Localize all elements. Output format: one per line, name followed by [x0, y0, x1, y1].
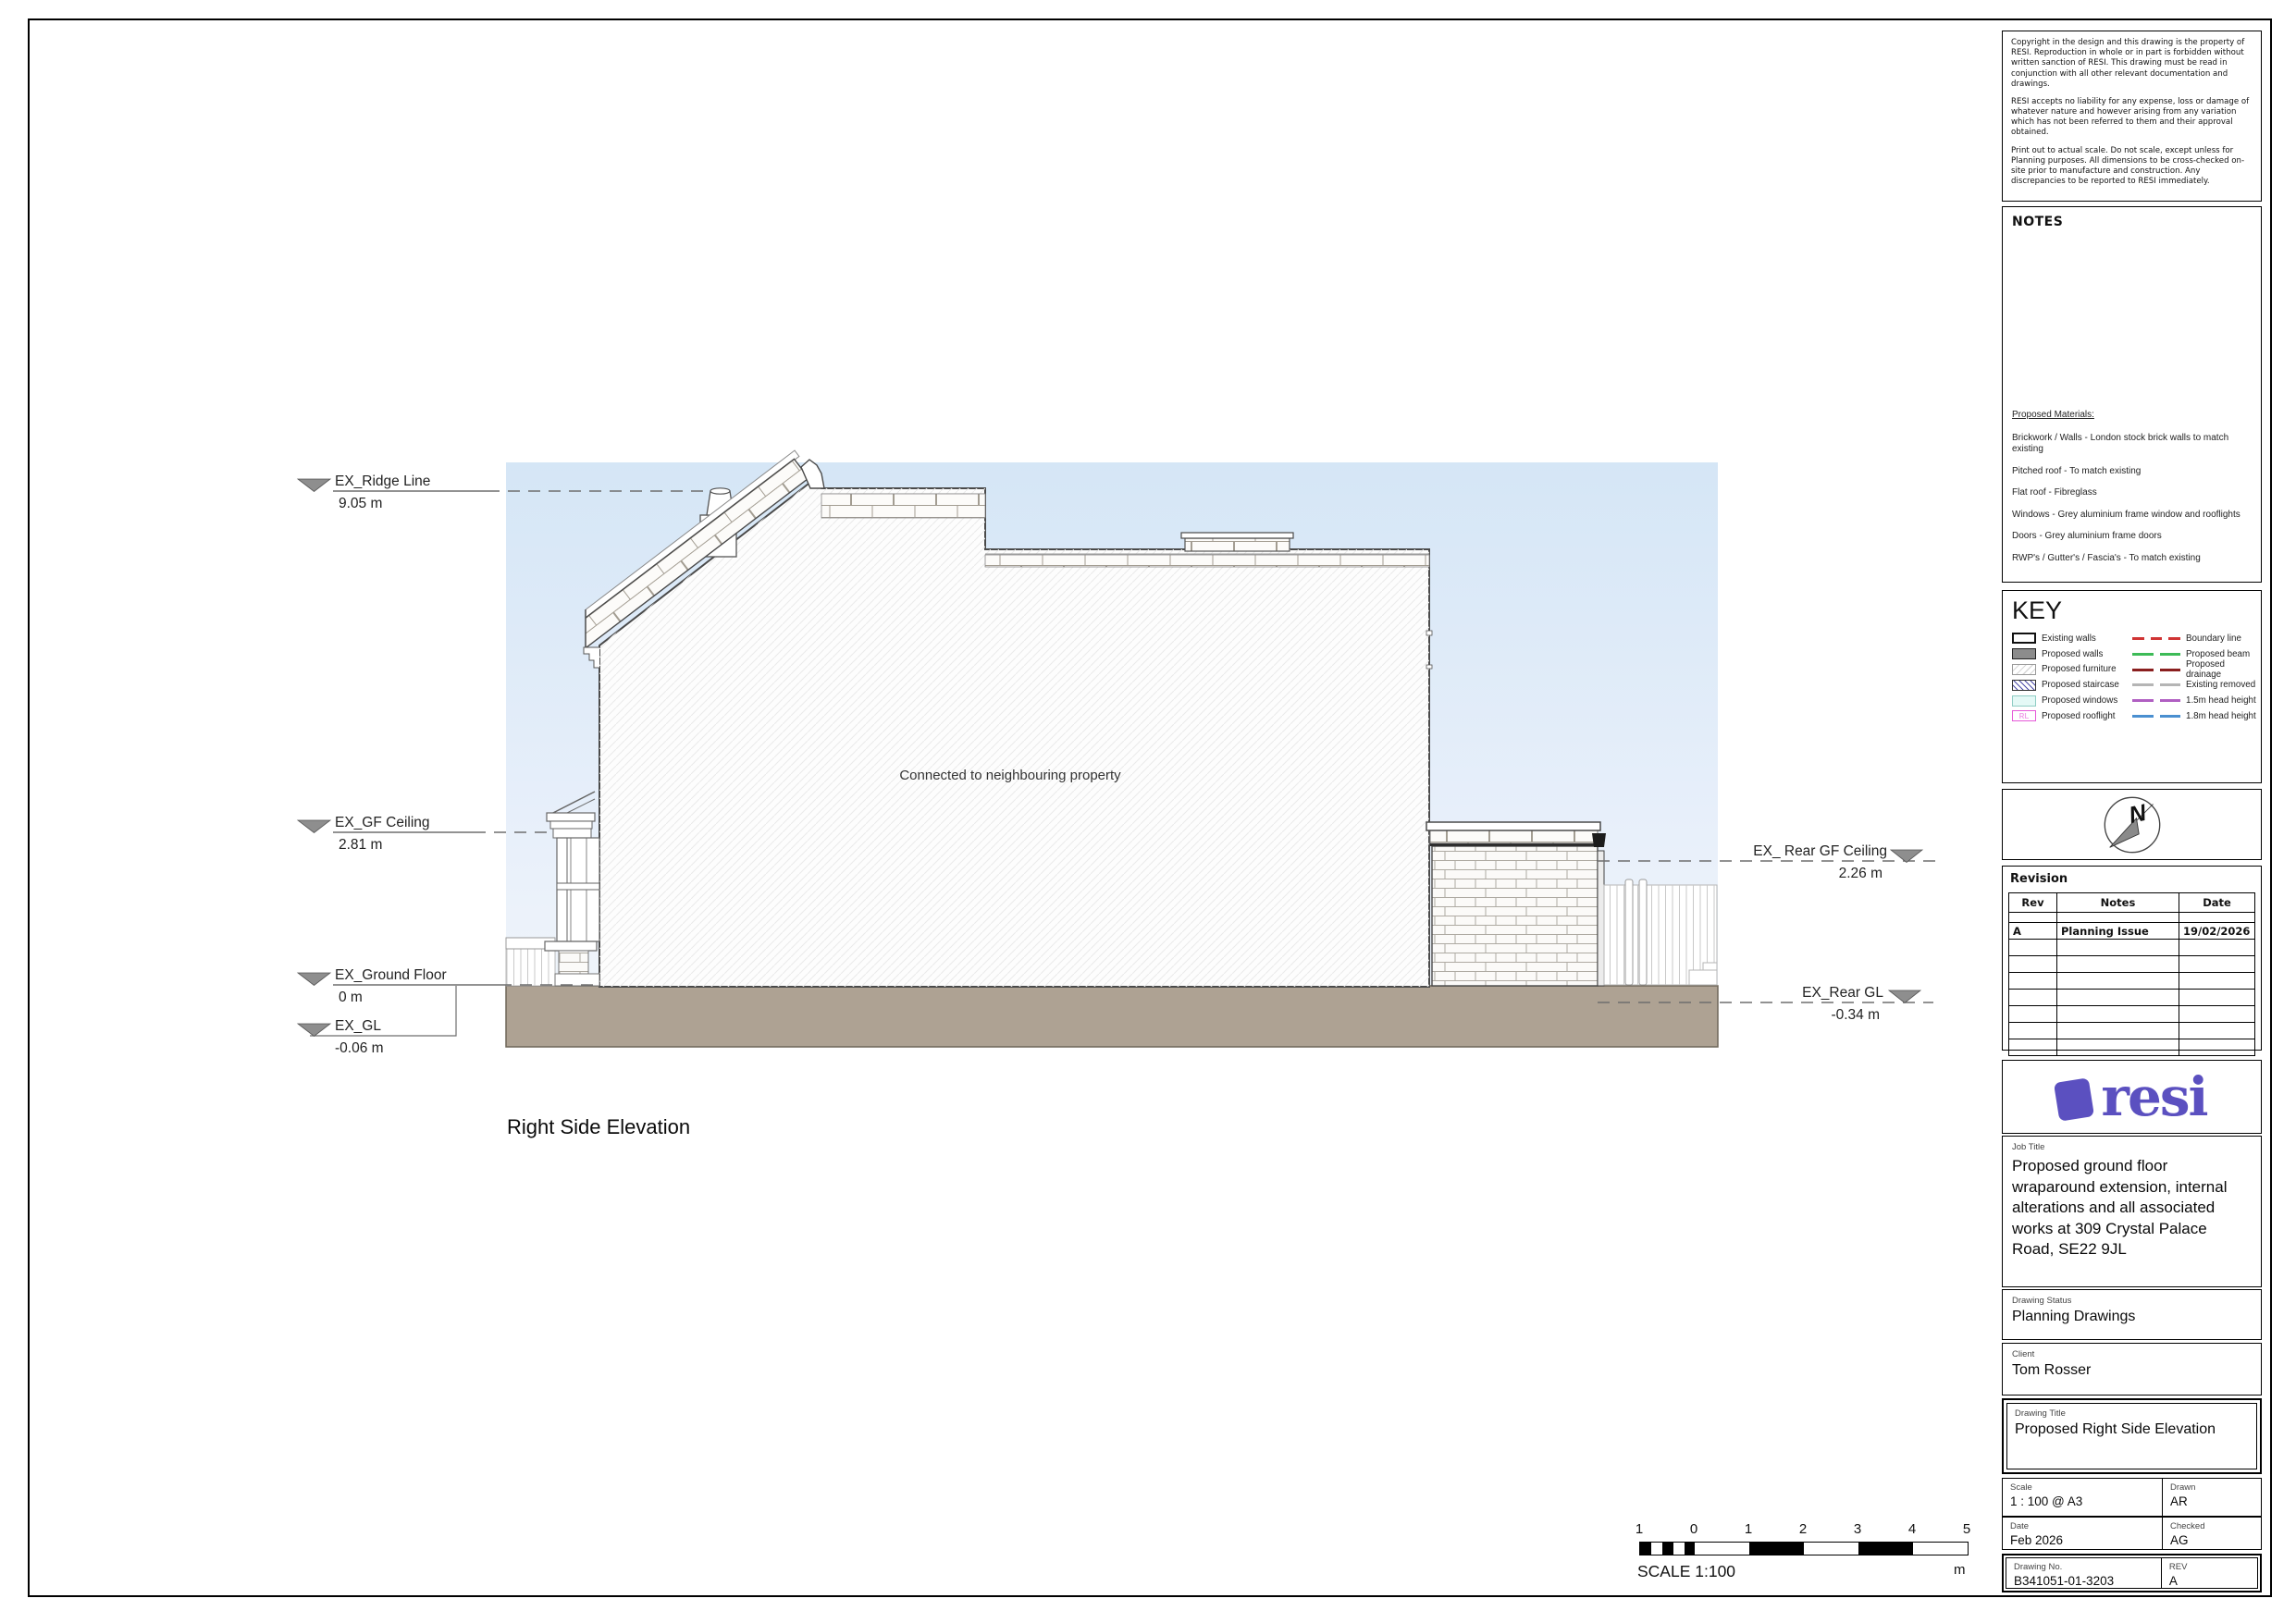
level-gf-ceiling-label: EX_GF Ceiling: [335, 815, 430, 830]
revision-row-empty: [2009, 913, 2255, 923]
key-item-proposed-walls: Proposed walls: [2012, 648, 2125, 659]
date-checked-row: Date Feb 2026 Checked AG: [2002, 1517, 2262, 1550]
connected-note: Connected to neighbouring property: [899, 768, 1121, 783]
scale-tick-label: 2: [1799, 1521, 1807, 1537]
notes-panel: NOTES Proposed Materials: Brickwork / Wa…: [2002, 206, 2262, 583]
revision-panel: Revision Rev Notes Date A Planning Issue…: [2002, 866, 2262, 1051]
boundary-line-swatch: [2132, 637, 2180, 640]
key-item-proposed-rooflight: RL Proposed rooflight: [2012, 710, 2125, 721]
drawing-status-value: Planning Drawings: [2012, 1308, 2252, 1327]
material-item: RWP's / Gutter's / Fascia's - To match e…: [2012, 553, 2252, 565]
drawing-no-label: Drawing No.: [2014, 1562, 2154, 1572]
resi-logo-mark-icon: [2054, 1077, 2094, 1121]
key-label: Proposed windows: [2042, 695, 2117, 706]
client-panel: Client Tom Rosser: [2002, 1343, 2262, 1396]
scale-cell: Scale 1 : 100 @ A3: [2002, 1478, 2163, 1517]
level-rear-gl-label: EX_Rear GL: [1802, 985, 1883, 1001]
revision-table: Rev Notes Date A Planning Issue 19/02/20…: [2008, 892, 2255, 1056]
proposed-beam-swatch: [2132, 653, 2180, 656]
client-label: Client: [2012, 1349, 2252, 1359]
revision-col-rev: Rev: [2009, 893, 2057, 913]
scale-tick-label: 1: [1636, 1521, 1643, 1537]
drawing-title-panel: Drawing Title Proposed Right Side Elevat…: [2002, 1398, 2262, 1474]
drawing-status-label: Drawing Status: [2012, 1296, 2252, 1306]
material-item: Windows - Grey aluminium frame window an…: [2012, 510, 2252, 522]
key-label: 1.8m head height: [2186, 711, 2256, 721]
material-item: Flat roof - Fibreglass: [2012, 487, 2252, 499]
parapet-upstand: [1185, 538, 1290, 551]
key-heading: KEY: [2012, 596, 2252, 625]
level-gl-label: EX_GL: [335, 1018, 381, 1034]
level-ridge-label: EX_Ridge Line: [335, 473, 430, 489]
scale-caption: SCALE 1:100: [1637, 1562, 1735, 1581]
key-label: Existing removed: [2186, 680, 2255, 690]
key-label: Proposed drainage: [2186, 659, 2260, 680]
scale-bar-segments: [1639, 1542, 1969, 1555]
drawing-title-value: Proposed Right Side Elevation: [2015, 1420, 2249, 1440]
drawing-no-value: B341051-01-3203: [2014, 1573, 2154, 1590]
level-ridge-value: 9.05 m: [339, 496, 382, 511]
notes-heading: NOTES: [2012, 215, 2252, 229]
job-title-label: Job Title: [2012, 1142, 2252, 1152]
key-label: Boundary line: [2186, 633, 2241, 644]
copyright-p2: RESI accepts no liability for any expens…: [2011, 97, 2253, 139]
view-title: Right Side Elevation: [507, 1115, 690, 1139]
proposed-staircase-swatch: [2012, 680, 2036, 691]
key-panel: KEY Existing walls Boundary line Propose…: [2002, 590, 2262, 783]
key-label: Proposed staircase: [2042, 680, 2119, 690]
key-item-proposed-windows: Proposed windows: [2012, 695, 2125, 707]
scale-tick-label: 0: [1690, 1521, 1697, 1537]
materials-heading: Proposed Materials:: [2012, 410, 2252, 422]
level-rear-gf-ceiling-value: 2.26 m: [1839, 866, 1882, 881]
drawn-label: Drawn: [2170, 1482, 2253, 1493]
material-item: Brickwork / Walls - London stock brick w…: [2012, 433, 2252, 456]
level-rear-gf-ceiling-label: EX_ Rear GF Ceiling: [1753, 843, 1887, 859]
scale-bar: 1 0 1 2 3 4 5 SCALE 1:100 m: [1636, 1521, 1987, 1580]
checked-value: AG: [2170, 1532, 2253, 1549]
key-item-existing-walls: Existing walls: [2012, 633, 2125, 644]
key-item-proposed-beam: Proposed beam: [2132, 649, 2260, 659]
revision-notes: Planning Issue: [2057, 923, 2179, 940]
key-item-proposed-drainage: Proposed drainage: [2132, 659, 2260, 680]
material-item: Pitched roof - To match existing: [2012, 466, 2252, 478]
drawing-status-panel: Drawing Status Planning Drawings: [2002, 1289, 2262, 1340]
elevation-drawing: Connected to neighbouring property EX_Ri…: [0, 0, 2296, 1623]
rev-cell: REV A: [2162, 1557, 2258, 1589]
drawing-no-cell: Drawing No. B341051-01-3203: [2006, 1557, 2162, 1589]
scale-tick-label: 1: [1745, 1521, 1752, 1537]
revision-row-empty: [2009, 1039, 2255, 1056]
revision-heading: Revision: [2008, 870, 2255, 890]
drawing-no-row: Drawing No. B341051-01-3203 REV A: [2002, 1554, 2262, 1592]
revision-row-empty: [2009, 973, 2255, 990]
key-label: Existing walls: [2042, 633, 2096, 644]
level-gl: EX_GL -0.06 m: [298, 986, 456, 1056]
date-label: Date: [2010, 1521, 2154, 1531]
copyright-notes: Copyright in the design and this drawing…: [2002, 31, 2262, 202]
job-title-value: Proposed ground floor wraparound extensi…: [2012, 1156, 2252, 1260]
job-title-panel: Job Title Proposed ground floor wraparou…: [2002, 1136, 2262, 1287]
revision-row-empty: [2009, 990, 2255, 1006]
scale-value: 1 : 100 @ A3: [2010, 1494, 2154, 1510]
revision-row-empty: [2009, 940, 2255, 956]
downpipe: [1598, 851, 1604, 986]
proposed-rooflight-swatch: RL: [2012, 710, 2036, 721]
proposed-walls-swatch: [2012, 648, 2036, 659]
revision-col-notes: Notes: [2057, 893, 2179, 913]
north-letter: N: [2126, 799, 2148, 828]
rev-value: A: [2169, 1573, 2250, 1590]
rev-label: REV: [2169, 1562, 2250, 1572]
revision-date: 19/02/2026: [2179, 923, 2255, 940]
revision-row-empty: [2009, 1023, 2255, 1039]
client-value: Tom Rosser: [2012, 1361, 2252, 1381]
key-label: 1.5m head height: [2186, 695, 2256, 706]
drawing-sheet: Connected to neighbouring property EX_Ri…: [0, 0, 2296, 1623]
key-item-existing-removed: Existing removed: [2132, 680, 2260, 690]
head-height-18-swatch: [2132, 715, 2180, 718]
key-item-proposed-furniture: Proposed furniture: [2012, 664, 2125, 675]
scale-label: Scale: [2010, 1482, 2154, 1493]
key-item-boundary-line: Boundary line: [2132, 633, 2260, 644]
scale-tick-label: 4: [1908, 1521, 1916, 1537]
material-item: Doors - Grey aluminium frame doors: [2012, 531, 2252, 543]
proposed-furniture-swatch: [2012, 664, 2036, 675]
revision-rev: A: [2009, 923, 2057, 940]
date-cell: Date Feb 2026: [2002, 1517, 2163, 1550]
ground: [506, 986, 1718, 1047]
level-gf-ceiling-value: 2.81 m: [339, 837, 382, 853]
key-label: Proposed beam: [2186, 649, 2250, 659]
level-ground-floor-label: EX_Ground Floor: [335, 967, 447, 983]
key-item-proposed-staircase: Proposed staircase: [2012, 680, 2125, 691]
checked-label: Checked: [2170, 1521, 2253, 1531]
key-label: Proposed rooflight: [2042, 711, 2116, 721]
revision-row: A Planning Issue 19/02/2026: [2009, 923, 2255, 940]
proposed-materials: Proposed Materials: Brickwork / Walls - …: [2012, 410, 2252, 574]
key-label: Proposed furniture: [2042, 664, 2117, 674]
north-arrow-panel: N: [2002, 789, 2262, 860]
scale-tick-label: 3: [1854, 1521, 1861, 1537]
copyright-p1: Copyright in the design and this drawing…: [2011, 38, 2253, 90]
title-block: Copyright in the design and this drawing…: [2002, 31, 2262, 1595]
drawn-cell: Drawn AR: [2163, 1478, 2262, 1517]
copyright-p3: Print out to actual scale. Do not scale,…: [2011, 146, 2253, 188]
level-ground-floor-value: 0 m: [339, 990, 363, 1005]
scale-unit: m: [1954, 1562, 1966, 1578]
revision-col-date: Date: [2179, 893, 2255, 913]
revision-row-empty: [2009, 1006, 2255, 1023]
gutter-hopper: [1592, 833, 1606, 847]
proposed-windows-swatch: [2012, 695, 2036, 707]
existing-removed-swatch: [2132, 683, 2180, 686]
proposed-drainage-swatch: [2132, 669, 2180, 671]
resi-logo-text: resi: [2101, 1070, 2206, 1124]
level-rear-gl-value: -0.34 m: [1831, 1007, 1880, 1023]
rear-fence: [1604, 879, 1717, 985]
key-item-head-height-15: 1.5m head height: [2132, 695, 2260, 706]
drawing-title-label: Drawing Title: [2015, 1408, 2249, 1419]
drawn-value: AR: [2170, 1494, 2253, 1510]
north-arrow-icon: N: [2099, 792, 2166, 858]
date-value: Feb 2026: [2010, 1532, 2154, 1549]
logo-panel: resi: [2002, 1060, 2262, 1134]
rear-extension: [1426, 822, 1606, 986]
checked-cell: Checked AG: [2163, 1517, 2262, 1550]
key-label: Proposed walls: [2042, 649, 2103, 659]
head-height-15-swatch: [2132, 699, 2180, 702]
revision-row-empty: [2009, 956, 2255, 973]
level-gl-value: -0.06 m: [335, 1040, 384, 1056]
scale-tick-label: 5: [1963, 1521, 1970, 1537]
key-item-head-height-18: 1.8m head height: [2132, 711, 2260, 721]
existing-walls-swatch: [2012, 633, 2036, 644]
scale-drawn-row: Scale 1 : 100 @ A3 Drawn AR: [2002, 1478, 2262, 1517]
